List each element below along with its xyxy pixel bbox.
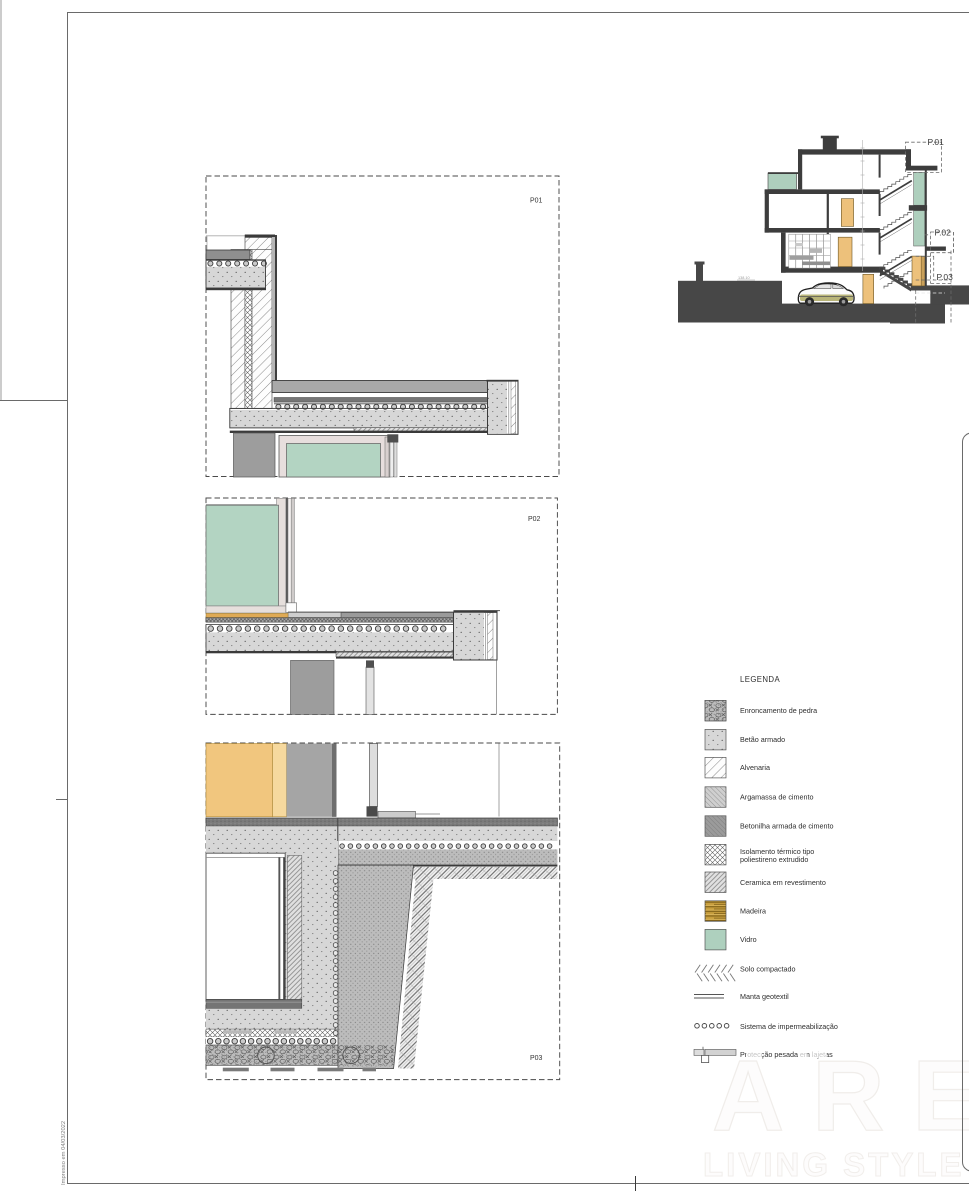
svg-text:Impresso em 04/03/2022: Impresso em 04/03/2022: [61, 1121, 67, 1185]
svg-text:Betonilha armada de cimento: Betonilha armada de cimento: [740, 822, 834, 831]
svg-text:P.02: P.02: [935, 227, 952, 237]
svg-text:Manta geotextil: Manta geotextil: [740, 992, 789, 1001]
svg-text:P03: P03: [530, 1055, 543, 1062]
svg-text:Solo compactado: Solo compactado: [740, 965, 796, 974]
svg-text:P.03: P.03: [937, 272, 954, 282]
svg-text:Ceramica em revestimento: Ceramica em revestimento: [740, 878, 826, 887]
svg-text:P.01: P.01: [928, 137, 945, 147]
svg-text:Argamassa de cimento: Argamassa de cimento: [740, 793, 814, 802]
svg-text:P02: P02: [528, 516, 541, 523]
svg-text:LEGENDA: LEGENDA: [740, 675, 780, 684]
svg-text:P01: P01: [530, 198, 543, 205]
svg-text:poliestireno extrudido: poliestireno extrudido: [740, 855, 808, 864]
svg-text:LIVING STYLE: LIVING STYLE: [703, 1146, 965, 1183]
svg-text:Madeira: Madeira: [740, 907, 766, 916]
svg-text:Betão armado: Betão armado: [740, 735, 785, 744]
svg-text:Vidro: Vidro: [740, 935, 757, 944]
svg-text:Alvenaria: Alvenaria: [740, 763, 770, 772]
svg-text:Sistema de impermeabilização: Sistema de impermeabilização: [740, 1022, 838, 1031]
svg-text:138.10: 138.10: [738, 276, 750, 280]
svg-text:Enroncamento de pedra: Enroncamento de pedra: [740, 706, 817, 715]
